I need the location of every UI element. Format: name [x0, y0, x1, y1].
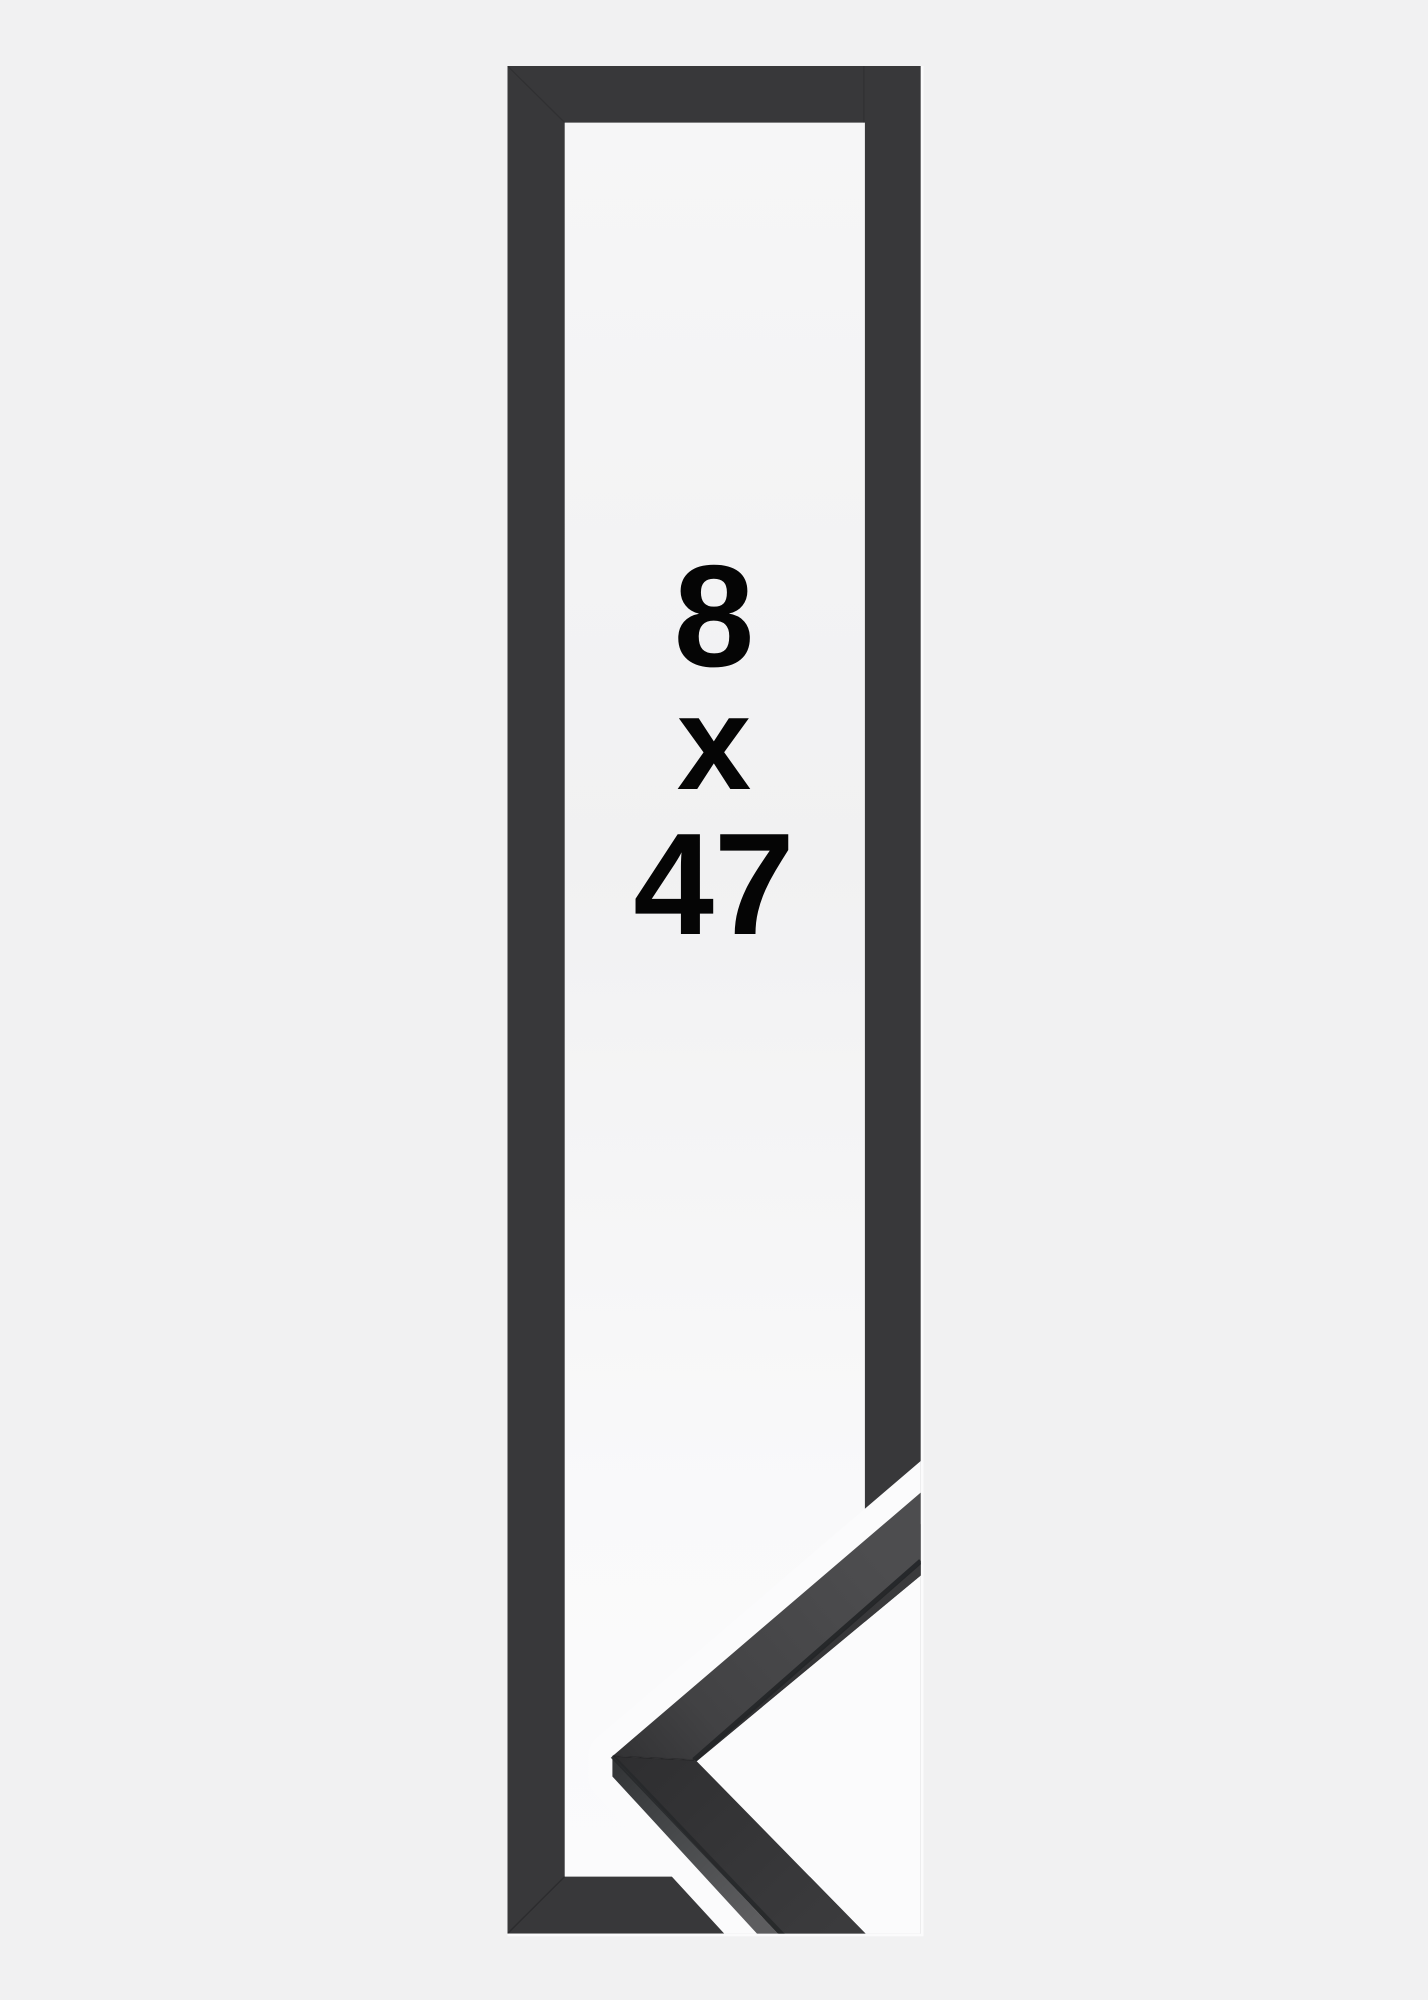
svg-text:47: 47 — [633, 803, 794, 965]
svg-text:x: x — [677, 669, 752, 818]
